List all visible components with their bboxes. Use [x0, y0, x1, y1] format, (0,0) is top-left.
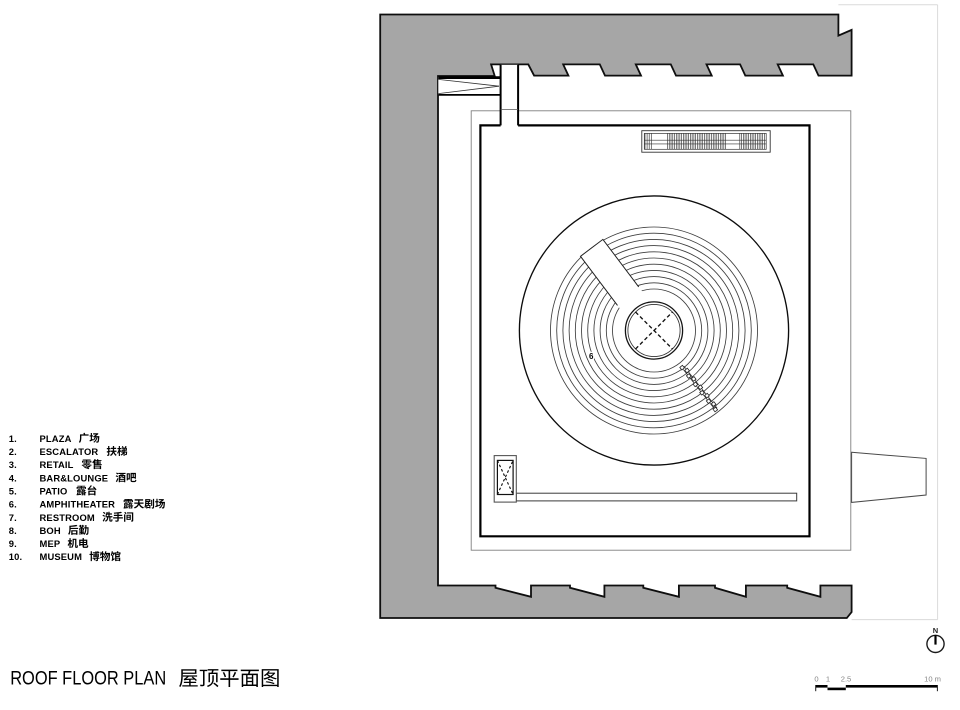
svg-text:1: 1: [826, 674, 830, 683]
svg-text:RETAIL: RETAIL: [40, 459, 74, 470]
svg-text:MUSEUM: MUSEUM: [40, 551, 83, 562]
svg-text:1.: 1.: [9, 433, 17, 444]
svg-text:3.: 3.: [9, 459, 17, 470]
svg-text:7.: 7.: [9, 512, 17, 523]
svg-text:10.: 10.: [9, 551, 22, 562]
svg-text:5.: 5.: [9, 485, 17, 496]
svg-text:8.: 8.: [9, 525, 17, 536]
svg-text:PATIO: PATIO: [40, 485, 68, 496]
svg-text:N: N: [933, 626, 938, 635]
svg-text:10 m: 10 m: [924, 674, 941, 683]
svg-text:6: 6: [589, 352, 594, 361]
svg-text:MEP: MEP: [40, 538, 61, 549]
svg-text:2.: 2.: [9, 446, 17, 457]
svg-text:RESTROOM: RESTROOM: [40, 512, 95, 523]
svg-text:BAR&LOUNGE: BAR&LOUNGE: [40, 472, 109, 483]
svg-text:BOH: BOH: [40, 525, 61, 536]
svg-text:AMPHITHEATER: AMPHITHEATER: [40, 499, 116, 510]
svg-text:2.5: 2.5: [841, 674, 852, 683]
svg-text:6.: 6.: [9, 499, 17, 510]
svg-text:0: 0: [814, 674, 818, 683]
svg-text:ESCALATOR: ESCALATOR: [40, 446, 99, 457]
svg-text:4.: 4.: [9, 472, 17, 483]
svg-text:PLAZA: PLAZA: [40, 433, 72, 444]
svg-text:9.: 9.: [9, 538, 17, 549]
svg-text:ROOF FLOOR PLAN: ROOF FLOOR PLAN: [10, 668, 166, 690]
